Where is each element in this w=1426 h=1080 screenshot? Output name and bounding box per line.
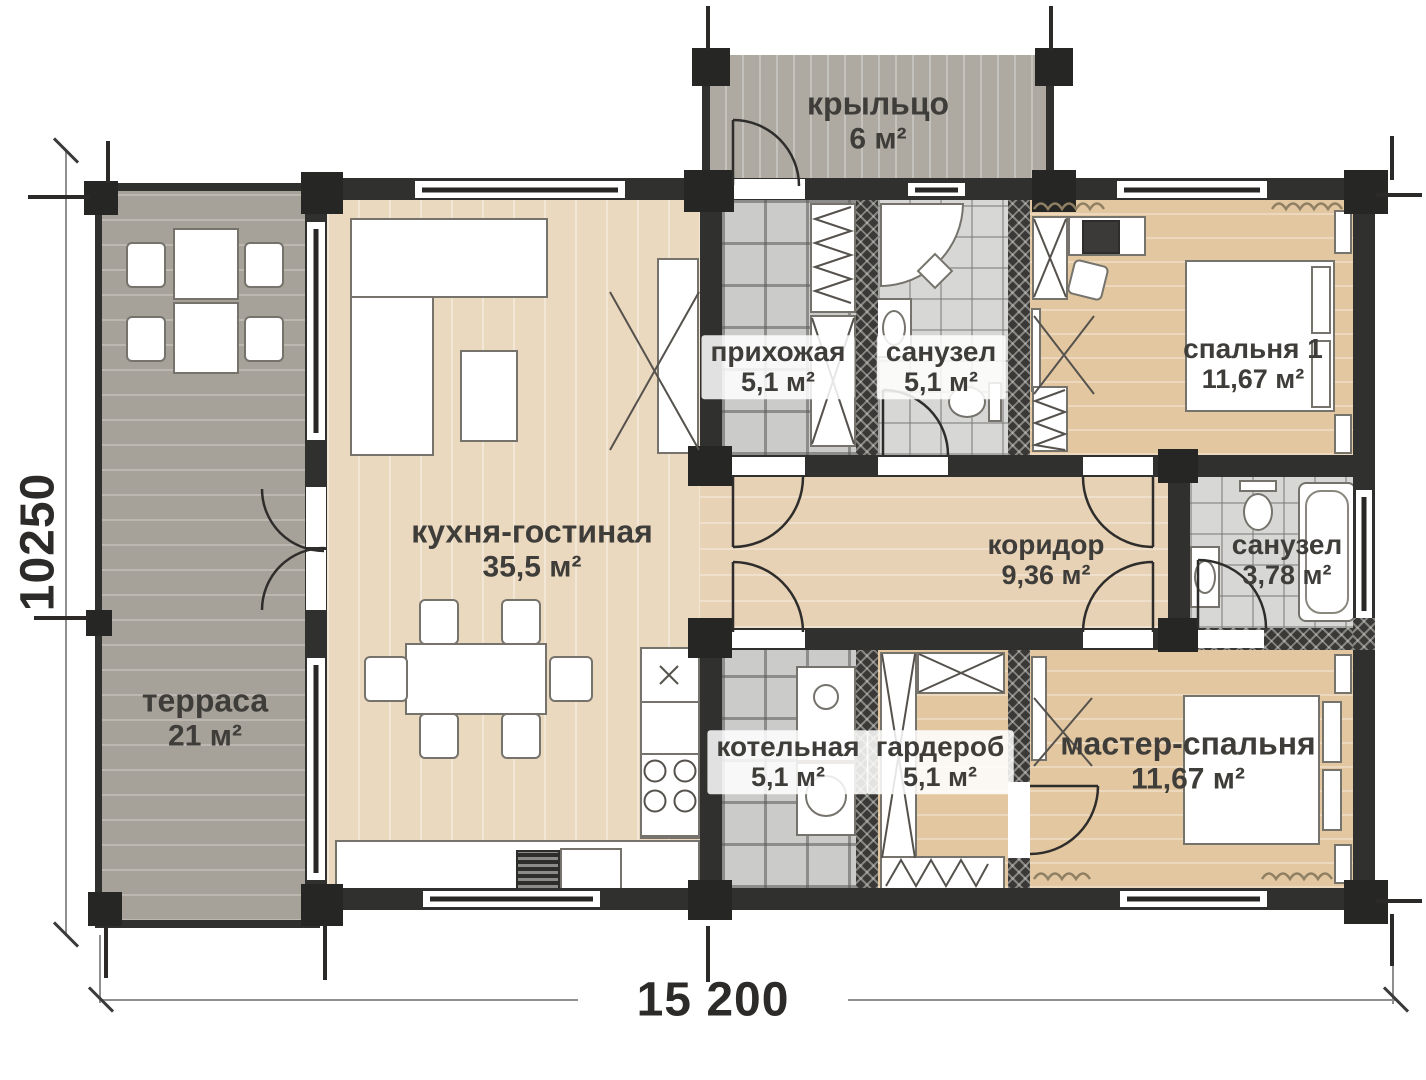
post [1344,170,1388,214]
dining-chair [364,656,408,702]
terrace-table [173,228,239,300]
nightstand [1334,654,1352,694]
room-name: котельная [716,731,859,762]
bedroom1-dresser [1032,386,1068,452]
room-name: кухня-гостиная [411,514,653,550]
room-name: санузел [886,336,997,367]
sink-basin [1194,560,1216,594]
room-label-bathroom2: санузел 3,78 м² [1232,529,1343,591]
room-terrace-floor [101,191,305,921]
axis-tick [104,926,108,978]
post [1032,170,1076,212]
bedroom1-wardrobe [1032,216,1068,300]
dimension-height: 10250 [11,473,66,611]
axis-tick [106,141,110,183]
room-name: спальня 1 [1183,333,1323,364]
post [1158,449,1198,483]
dining-table [405,643,547,715]
axis-tick [1390,136,1394,180]
dining-chair [419,713,459,759]
axis-tick [1390,914,1394,966]
room-label-master-bedroom: мастер-спальня 11,67 м² [1060,726,1315,795]
toilet-tank [1239,480,1277,492]
axis-tick [706,6,710,50]
kitchen-cabinet [560,848,622,892]
wall-kitchen-right-upper [700,178,722,460]
nightstand [1334,414,1352,454]
stove [640,753,700,837]
axis-tick [28,195,90,199]
room-label-hallway: прихожая 5,1 м² [702,335,855,399]
wall-hatch-hallway-bath [856,200,878,455]
room-area: 5,1 м² [741,368,815,398]
room-area: 3,78 м² [1242,561,1331,591]
door-leaf-terrace [306,550,326,610]
terrace-chair [244,316,284,362]
wall-hatch-bath-bedroom1 [1008,200,1030,455]
hallway-wardrobe [810,203,856,313]
wall-bathroom2-left [1168,477,1190,628]
post [688,446,732,486]
window-master-bottom [1120,891,1267,907]
room-name: прихожая [711,336,846,367]
dimension-extension [99,935,101,1003]
door-opening-porch [728,179,805,199]
axis-tick [1049,6,1053,50]
pillow [1322,769,1342,831]
axis-tick [1376,899,1422,903]
wardrobe-shelf [880,856,1005,890]
axis-tick [1376,193,1422,197]
door-leaf-terrace [306,487,326,547]
post [86,610,112,636]
post [1158,618,1198,652]
terrace-edge-left [95,183,102,928]
room-name: мастер-спальня [1060,726,1315,762]
terrace-table [173,302,239,374]
terrace-chair [126,242,166,288]
room-label-wardrobe: гардероб 5,1 м² [867,730,1014,794]
dining-chair [419,599,459,645]
nightstand [1334,844,1352,884]
door-opening-bedroom1 [1083,457,1153,475]
terrace-edge-bottom [95,920,320,928]
window-kitchen-left-lower [307,658,325,880]
toilet-bowl [1243,493,1273,531]
sofa [350,218,548,298]
room-area: 21 м² [168,719,242,753]
dining-chair [501,713,541,759]
dimension-line-horizontal [848,999,1396,1001]
axis-tick [34,616,88,620]
room-label-bathroom1: санузел 5,1 м² [877,335,1006,399]
master-mirror [1031,656,1047,761]
room-label-boiler: котельная 5,1 м² [707,730,868,794]
room-label-kitchen-living: кухня-гостиная 35,5 м² [411,514,653,583]
tv-unit [657,258,699,454]
room-area: 11,67 м² [1202,365,1305,395]
room-area: 5,1 м² [904,368,978,398]
room-area: 11,67 м² [1131,762,1245,796]
door-opening-bathroom1 [878,457,948,475]
window-kitchen-top [415,181,625,198]
dining-chair [549,656,593,702]
post [1035,48,1073,86]
post [692,48,730,86]
room-name: санузел [1232,529,1343,560]
room-label-porch: крыльцо 6 м² [807,86,949,155]
mirror [1031,308,1041,392]
door-opening-hallway [728,457,805,475]
room-label-terrace: терраса 21 м² [142,683,268,752]
wall-hatch-wardrobe-master-lower [1008,858,1030,888]
terrace-chair [126,316,166,362]
room-name: крыльцо [807,86,949,122]
door-opening-bathroom2 [1196,630,1264,648]
window-bedroom1 [1117,181,1267,198]
dining-chair [501,599,541,645]
wall-hatch-right [1353,618,1375,650]
room-area: 5,1 м² [903,763,977,793]
room-label-bedroom1: спальня 1 11,67 м² [1183,333,1323,395]
axis-tick [323,924,327,980]
desk-printer [1082,220,1120,254]
post [688,880,732,920]
dimension-line-horizontal [100,999,578,1001]
door-opening-master [1083,630,1153,648]
window-bathroom2-right [1356,490,1372,618]
room-area: 35,5 м² [483,550,582,584]
dimension-width: 15 200 [637,973,790,1028]
terrace-chair [244,242,284,288]
door-opening-boiler [728,630,805,648]
room-area: 9,36 м² [1001,561,1090,591]
post [684,170,734,212]
floor-plan: 10250 15 200 [0,0,1426,1080]
room-name: терраса [142,683,268,719]
coffee-table [460,350,518,442]
room-area: 6 м² [849,122,906,156]
window-bathroom1 [908,183,965,196]
post [688,618,732,658]
pillow [1322,701,1342,763]
nightstand [1334,210,1352,254]
post [301,884,343,926]
room-area: 5,1 м² [751,763,825,793]
post [301,172,343,214]
room-name: гардероб [876,731,1005,762]
window-kitchen-left-upper [307,222,325,440]
room-label-corridor: коридор 9,36 м² [987,529,1104,591]
room-name: коридор [987,529,1104,560]
boiler-tank-small [813,684,839,710]
terrace-edge-top [95,183,305,191]
sofa [350,296,434,456]
post [88,892,122,926]
window-kitchen-bottom [423,891,600,907]
pillow [1311,266,1331,334]
wardrobe-cabinet [917,652,1005,694]
